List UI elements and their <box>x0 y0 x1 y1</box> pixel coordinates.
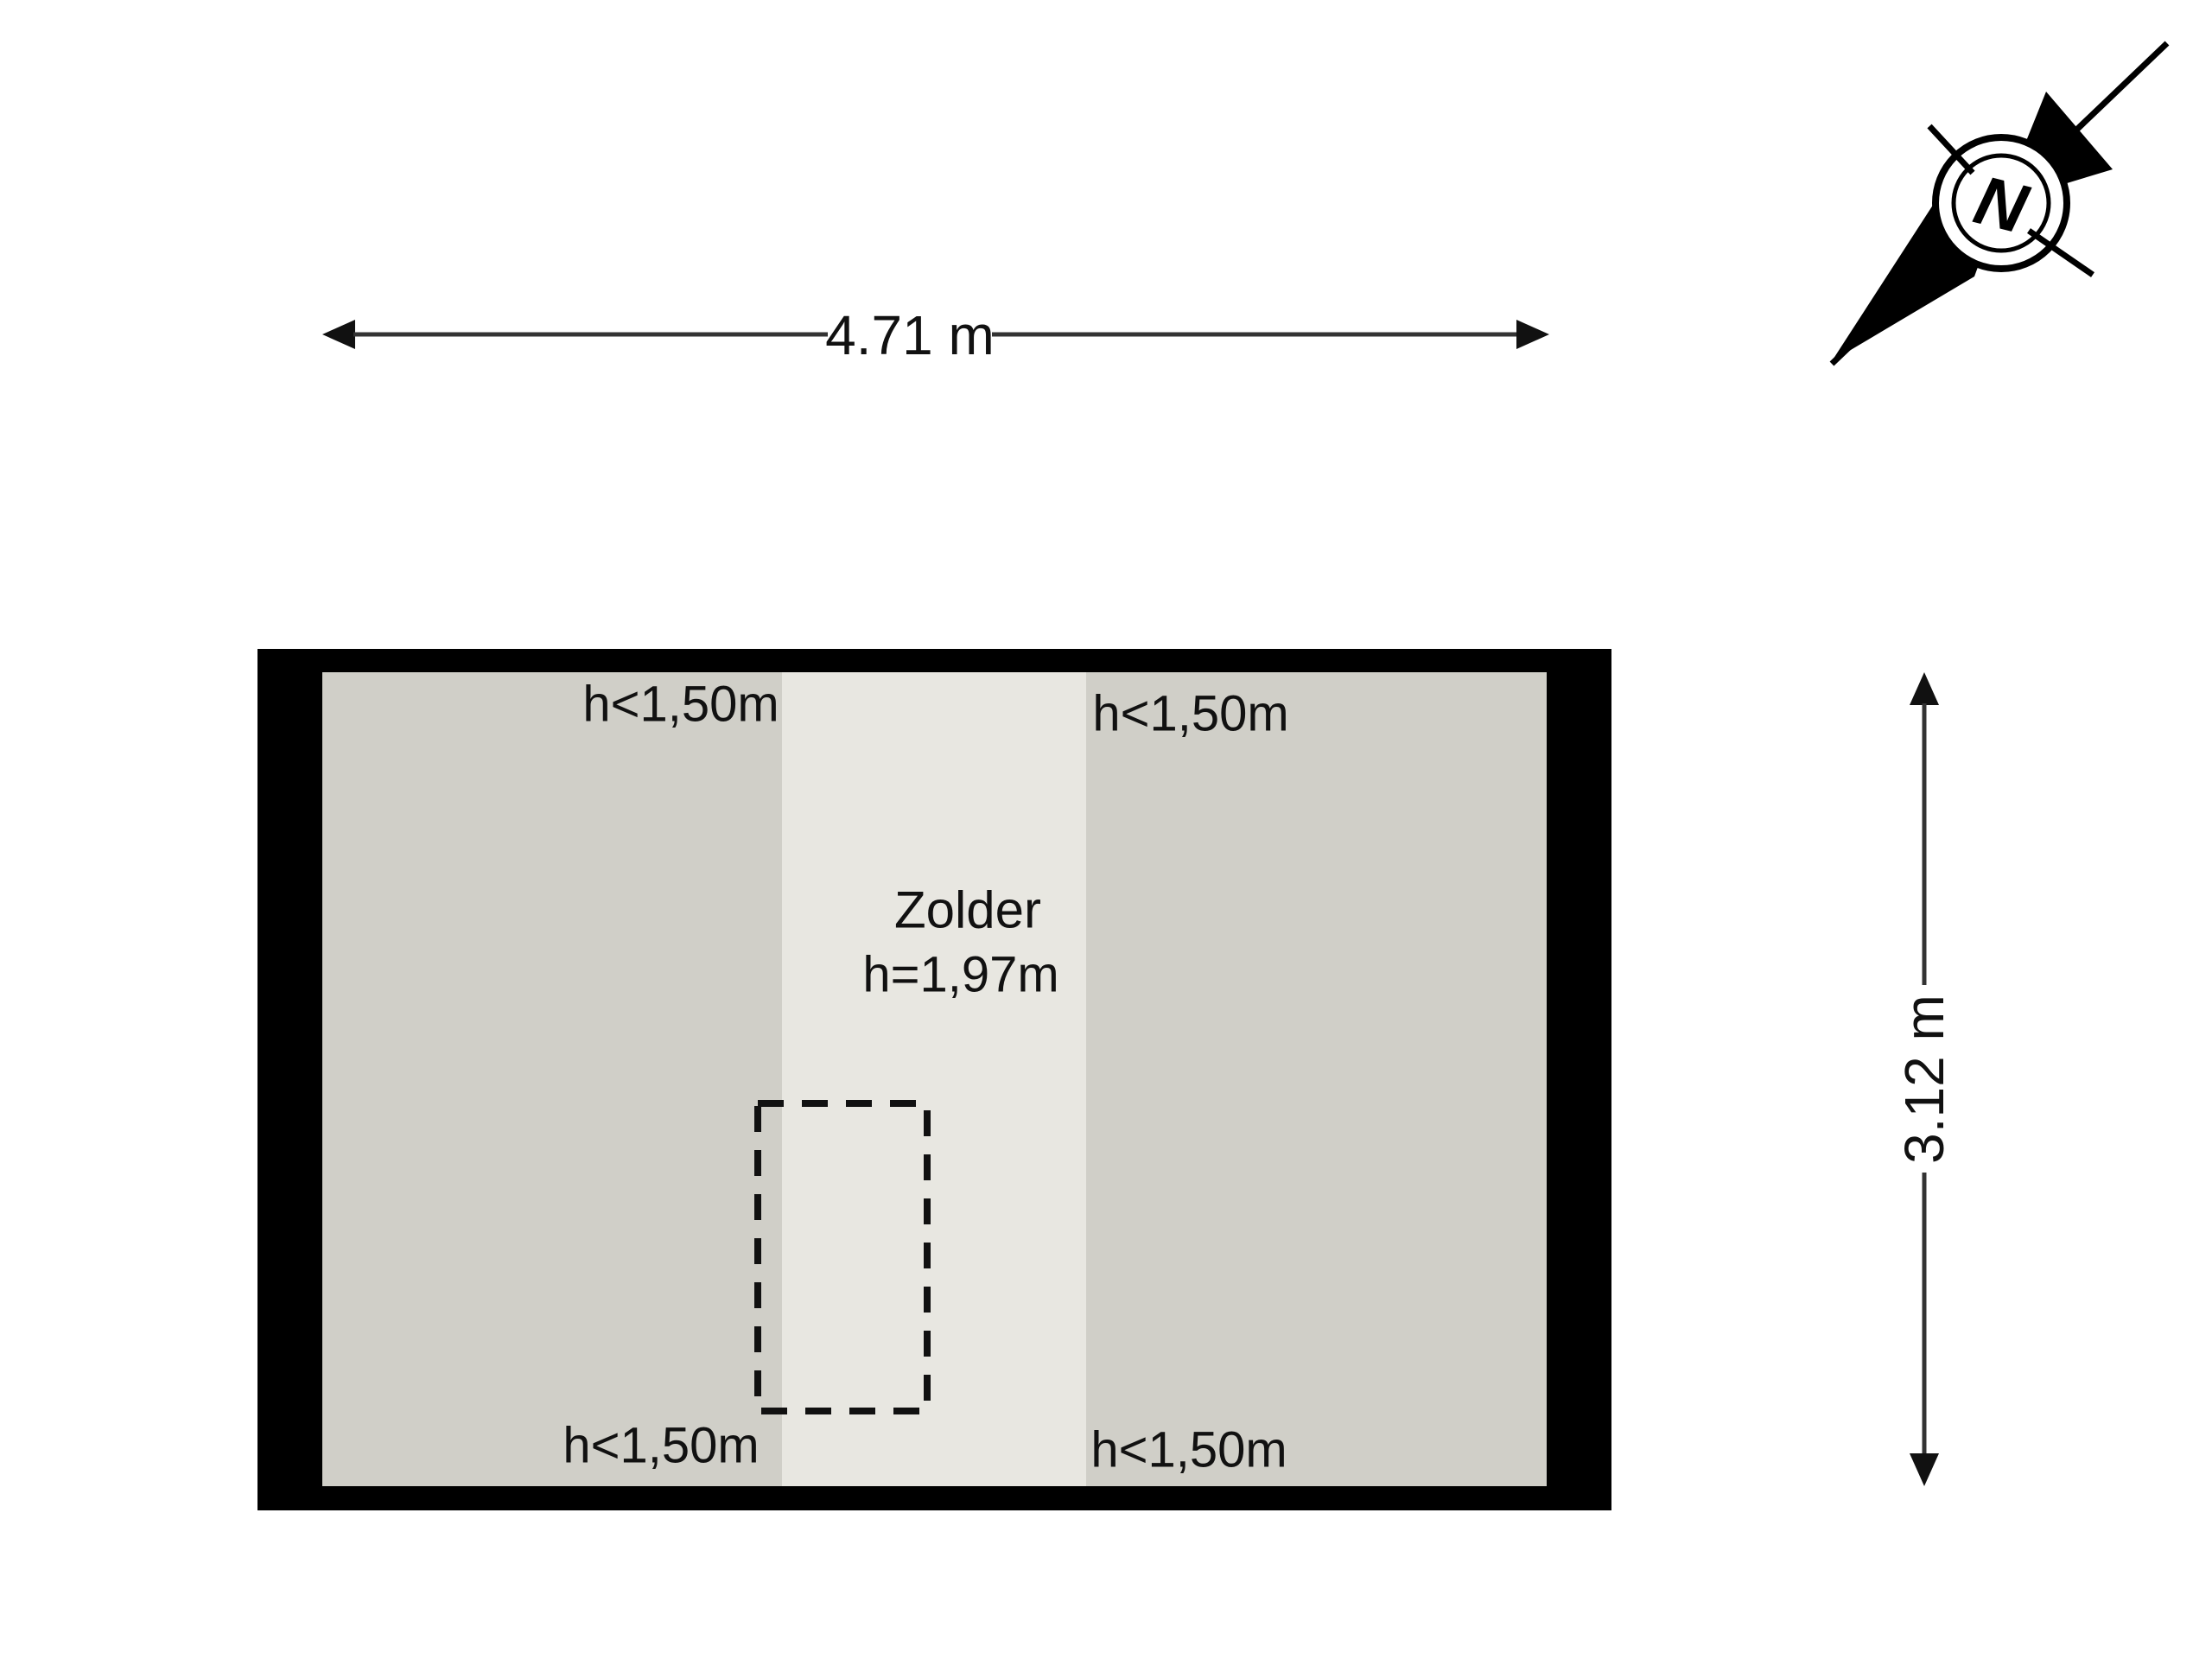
stair-opening <box>754 1100 931 1414</box>
low-headroom-zone-left <box>322 672 782 1486</box>
room-name-label: Zolder <box>894 880 1041 940</box>
room-height-label: h=1,97m <box>862 946 1058 1004</box>
low-headroom-label-bottom-left: h<1,50m <box>563 1417 759 1475</box>
dashed-rectangle <box>758 1103 927 1411</box>
arrowhead-left-icon <box>322 320 355 349</box>
stair-opening-outline <box>754 1100 931 1414</box>
arrowhead-up-icon <box>1910 672 1939 705</box>
floor-plan: h<1,50m h<1,50m h<1,50m h<1,50m Zolder h… <box>257 649 1611 1510</box>
arrowhead-right-icon <box>1516 320 1549 349</box>
room-interior: h<1,50m h<1,50m h<1,50m h<1,50m Zolder h… <box>322 672 1547 1486</box>
low-headroom-label-top-left: h<1,50m <box>582 676 779 734</box>
north-compass: N <box>1806 16 2186 378</box>
north-arrow-icon: N <box>1806 16 2186 378</box>
low-headroom-label-bottom-right: h<1,50m <box>1090 1421 1287 1479</box>
width-dimension-label: 4.71 m <box>825 303 995 367</box>
arrowhead-down-icon <box>1910 1453 1939 1486</box>
floor-plan-page: 4.71 m N h<1,50m h<1, <box>0 0 2212 1659</box>
low-headroom-zone-right <box>1086 672 1547 1486</box>
low-headroom-label-top-right: h<1,50m <box>1092 685 1288 743</box>
depth-dimension-label: 3.12 m <box>1892 995 1956 1164</box>
